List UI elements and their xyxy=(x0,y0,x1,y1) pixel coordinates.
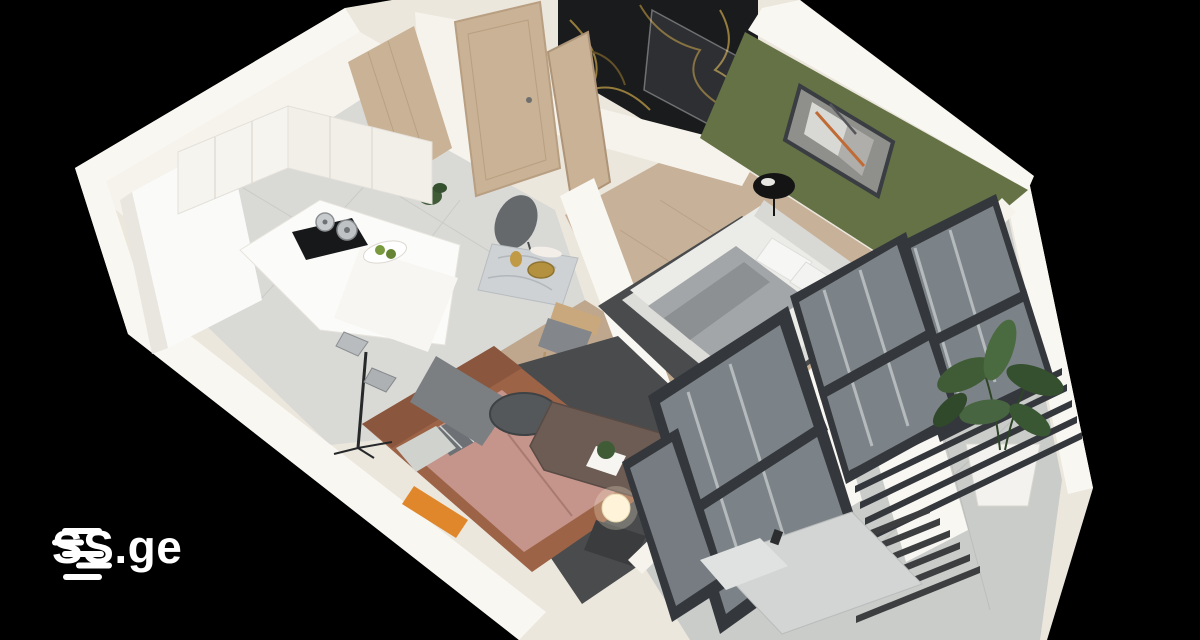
coffee-table-plant xyxy=(597,441,615,459)
gold-bowl xyxy=(528,262,554,278)
bedside-table xyxy=(753,173,795,199)
bedside-decor xyxy=(761,178,775,186)
door-handle xyxy=(526,97,532,103)
floorplan-render: SS.ge xyxy=(0,0,1200,640)
ss-lines-logo-icon xyxy=(52,524,114,582)
ss-ge-logo: SS.ge xyxy=(52,524,182,570)
gold-cup xyxy=(510,251,522,267)
